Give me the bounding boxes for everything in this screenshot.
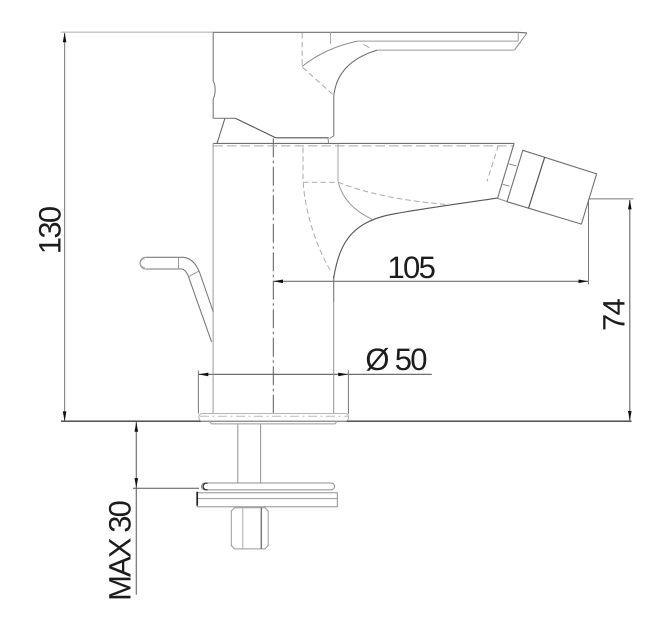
svg-text:74: 74	[597, 298, 632, 331]
svg-text:105: 105	[388, 250, 435, 285]
svg-text:Ø 50: Ø 50	[365, 342, 427, 377]
svg-text:130: 130	[32, 206, 67, 254]
svg-text:MAX 30: MAX 30	[102, 500, 137, 601]
